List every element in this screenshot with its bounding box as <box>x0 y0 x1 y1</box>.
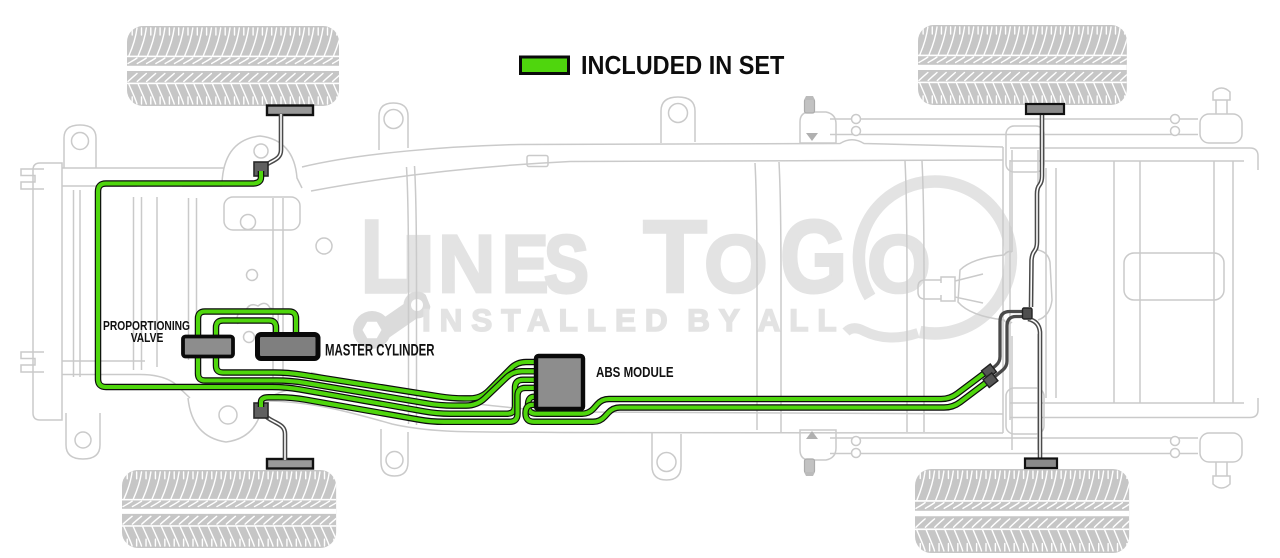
svg-text:VALVE: VALVE <box>131 332 164 345</box>
svg-text:INSTALLED BY ALL: INSTALLED BY ALL <box>422 302 846 338</box>
svg-text:O: O <box>867 219 931 310</box>
svg-text:E: E <box>502 219 548 311</box>
svg-text:S: S <box>544 218 589 310</box>
svg-text:O: O <box>704 219 768 310</box>
svg-text:T: T <box>643 200 707 315</box>
svg-text:G: G <box>780 200 847 315</box>
svg-text:MASTER CYLINDER: MASTER CYLINDER <box>325 340 434 359</box>
svg-text:ABS MODULE: ABS MODULE <box>596 364 674 381</box>
svg-text:INCLUDED IN SET: INCLUDED IN SET <box>581 52 784 80</box>
svg-text:N: N <box>438 219 495 310</box>
